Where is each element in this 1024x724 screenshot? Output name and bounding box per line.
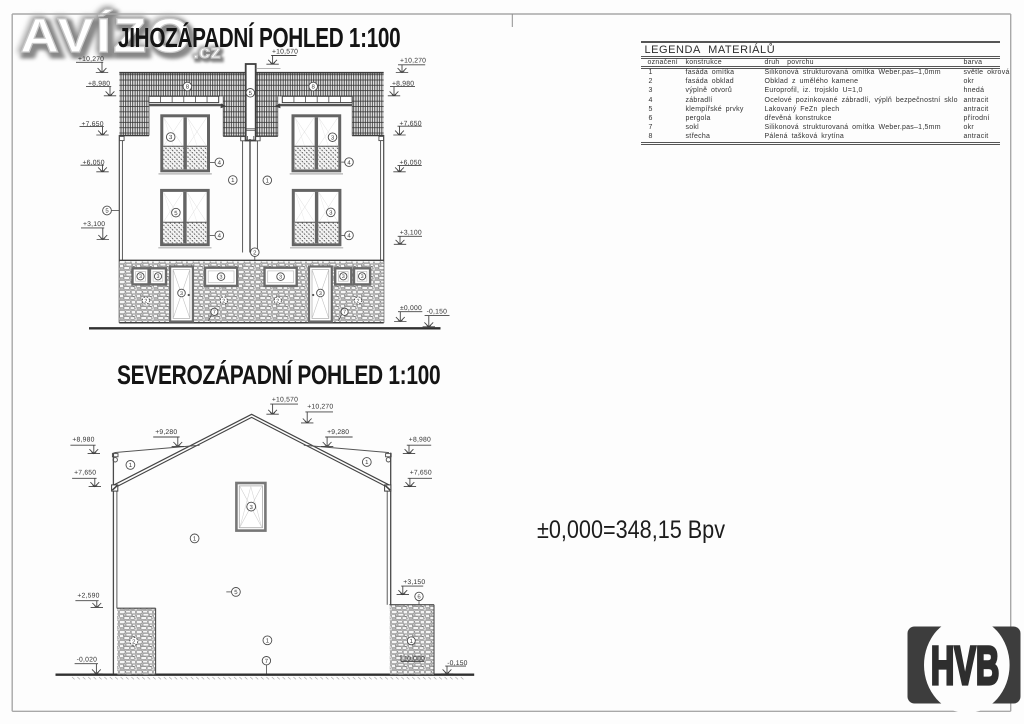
svg-text:+8,980: +8,980 [409,437,431,444]
svg-text:+7,650: +7,650 [74,470,96,477]
svg-text:+3,100: +3,100 [83,221,105,228]
svg-text:+7,650: +7,650 [82,121,104,128]
svg-text:-0,020: -0,020 [77,656,97,663]
svg-text:2: 2 [276,298,279,304]
svg-text:3: 3 [220,275,223,281]
svg-text:2: 2 [144,298,147,304]
svg-text:3: 3 [319,291,322,297]
svg-text:3: 3 [157,274,160,280]
svg-text:+2,590: +2,590 [77,593,99,600]
svg-text:2: 2 [357,298,360,304]
svg-text:+10,270: +10,270 [400,58,426,65]
svg-text:3: 3 [361,274,364,280]
svg-text:+3,100: +3,100 [400,229,422,236]
svg-text:3: 3 [342,274,345,280]
svg-text:3: 3 [180,291,183,297]
svg-text:3: 3 [139,274,142,280]
svg-text:2: 2 [222,298,225,304]
svg-text:HVB: HVB [931,636,999,696]
svg-text:7: 7 [343,310,346,316]
svg-text:3: 3 [279,275,282,281]
svg-text:+9,280: +9,280 [327,429,349,436]
svg-text:7: 7 [213,310,216,316]
svg-text:+10,570: +10,570 [272,396,298,403]
svg-text:+7,650: +7,650 [410,470,432,477]
svg-text:+8,980: +8,980 [72,437,94,444]
svg-text:±0,000: ±0,000 [400,305,422,312]
svg-text:+10,270: +10,270 [307,403,333,410]
svg-text:+9,280: +9,280 [155,429,177,436]
svg-text:+3,150: +3,150 [403,579,425,586]
svg-text:-0,150: -0,150 [427,309,447,316]
